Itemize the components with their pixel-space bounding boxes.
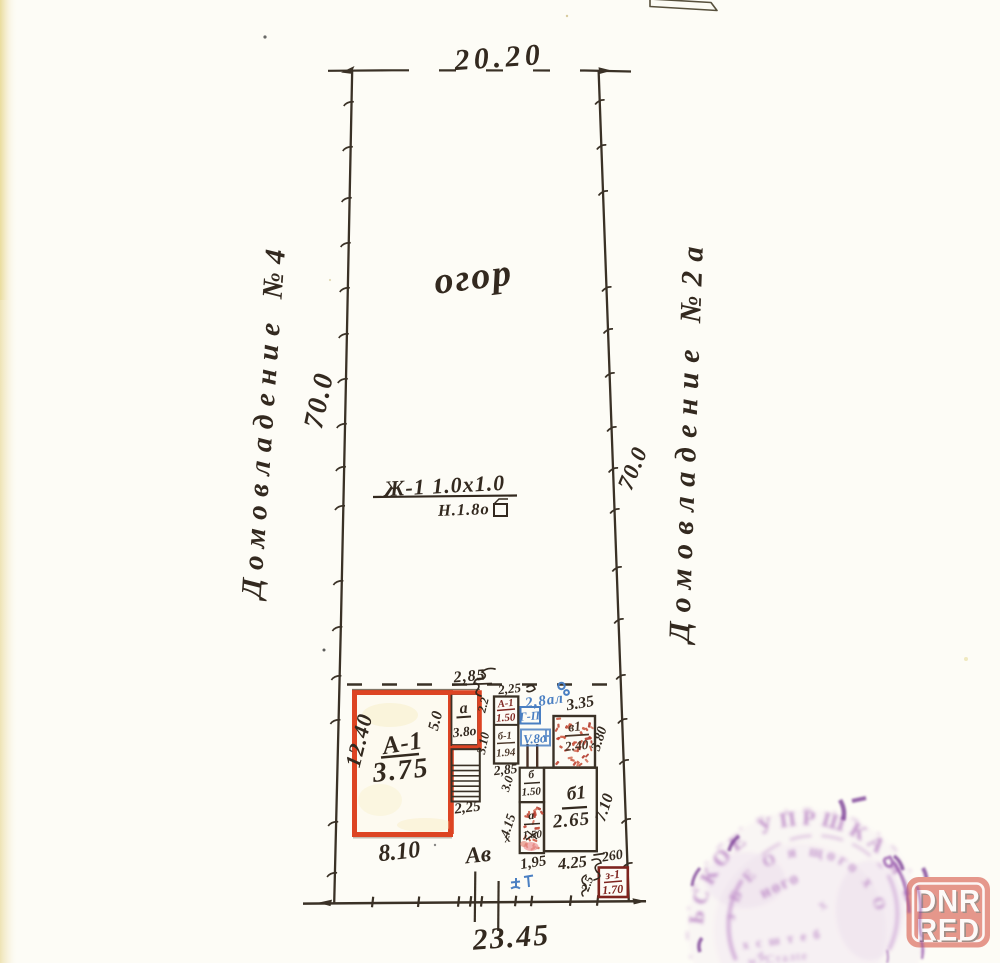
svg-text:А-1: А-1 [496,698,514,711]
svg-text:Ав: Ав [462,841,492,869]
svg-text:2,25: 2,25 [453,798,482,817]
svg-text:1.70: 1.70 [602,882,624,897]
svg-text:б1: б1 [566,782,587,805]
svg-text:2.65: 2.65 [551,808,591,832]
svg-text:а: а [459,700,468,718]
svg-text:1.50: 1.50 [521,785,542,798]
svg-text:4.25: 4.25 [556,852,588,874]
svg-text:20.20: 20.20 [452,38,545,77]
svg-text:з-1: з-1 [604,867,621,883]
svg-text:3.75: 3.75 [370,752,431,789]
svg-text:3.8о: 3.8о [451,723,477,741]
svg-text:2.40: 2.40 [563,737,589,754]
svg-text:23.45: 23.45 [471,918,552,956]
svg-text:V.8о: V.8о [523,730,548,747]
svg-text:2,85: 2,85 [452,667,486,687]
svg-text:1.50: 1.50 [496,711,517,724]
svg-text:в1: в1 [567,718,581,734]
svg-text:а: а [528,810,535,822]
svg-text:RED: RED [916,913,980,947]
svg-text:2,25: 2,25 [496,680,522,697]
svg-text:б-1: б-1 [497,731,512,743]
svg-text:1.94: 1.94 [496,746,517,759]
svg-text:Н.1.8о: Н.1.8о [437,499,490,520]
svg-text:8.10: 8.10 [377,837,421,867]
